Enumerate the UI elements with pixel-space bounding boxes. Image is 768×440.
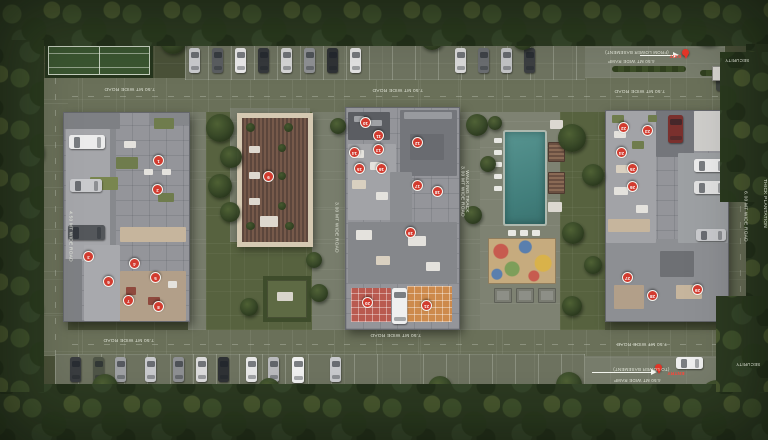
clubhouse-feature	[278, 202, 286, 210]
building-right-feature	[614, 285, 644, 309]
building-right-feature	[616, 165, 630, 173]
building-middle-feature	[408, 236, 426, 246]
pool-zone-feature	[494, 174, 502, 179]
parked-car	[696, 229, 726, 241]
building-middle-feature	[348, 112, 390, 140]
building-middle-feature	[348, 222, 457, 284]
tree-belt-left	[0, 40, 44, 392]
building-left-feature	[66, 129, 110, 261]
clubhouse-feature	[285, 222, 294, 230]
building-middle-features	[346, 108, 459, 329]
building-right-feature	[676, 285, 702, 299]
building-right-features	[606, 111, 728, 321]
building-right-feature	[608, 219, 650, 232]
building-middle-feature	[352, 180, 366, 189]
parked-car	[68, 225, 105, 240]
clubhouse-features	[242, 118, 308, 242]
parked-car	[392, 288, 407, 324]
clubhouse-feature	[246, 123, 255, 132]
clubhouse-feature	[249, 198, 260, 205]
building-left-feature	[90, 177, 118, 190]
building-left-feature	[64, 259, 82, 321]
building-left-feature	[120, 227, 186, 242]
building-middle-feature	[390, 172, 412, 284]
building-left-features	[64, 113, 189, 321]
site-master-plan: 1234567891011121314151617181920212223242…	[0, 0, 768, 440]
building-right-feature	[636, 205, 648, 213]
building-middle-feature	[348, 144, 396, 220]
tree-belt-right-upper	[720, 52, 768, 202]
building-right-feature	[614, 131, 626, 138]
building-left-feature	[84, 245, 120, 321]
building-left-feature	[162, 169, 171, 175]
pool-zone-feature	[494, 150, 502, 155]
building-right-feature	[660, 251, 694, 277]
hedge-garden	[263, 276, 311, 322]
clubhouse-feature	[249, 146, 260, 153]
building-right	[605, 110, 729, 322]
building-middle-feature	[426, 262, 440, 271]
building-right-feature	[614, 187, 628, 195]
building-left-feature	[120, 271, 186, 321]
building-left-feature	[144, 169, 153, 175]
building-left-feature	[64, 113, 120, 129]
building-right-feature	[606, 239, 728, 321]
pool-zone-feature	[494, 138, 502, 143]
building-left-feature	[124, 141, 136, 148]
clubhouse-feature	[246, 222, 255, 230]
pool-and-play-zone	[480, 112, 560, 330]
building-right-feature	[612, 115, 624, 123]
swimming-pool	[505, 132, 545, 224]
building-left-feature	[148, 297, 160, 305]
building-middle-feature	[370, 162, 382, 170]
building-right-feature	[606, 111, 656, 243]
clubhouse-deck	[237, 113, 313, 247]
building-middle-feature	[356, 230, 372, 240]
building-middle-feature	[376, 256, 390, 265]
play-zone-red	[351, 288, 391, 322]
building-left-feature	[154, 118, 174, 129]
building-left-feature	[110, 129, 116, 261]
building-right-feature	[648, 115, 657, 122]
building-left-feature	[126, 287, 136, 295]
building-middle-feature	[354, 116, 364, 122]
building-right-feature	[656, 111, 694, 157]
pool-zone-feature	[532, 230, 540, 236]
parked-car	[668, 115, 683, 143]
building-middle-feature	[410, 134, 444, 160]
pool-zone-features	[480, 112, 560, 330]
seating-pergola	[538, 288, 556, 303]
building-middle-cars	[346, 108, 459, 329]
building-left	[63, 112, 190, 322]
parked-car	[70, 179, 102, 192]
building-left-feature	[116, 157, 138, 169]
parked-car	[69, 135, 105, 149]
tree-belt-top	[0, 0, 768, 46]
clubhouse-feature	[260, 216, 278, 227]
seating-pergola	[494, 288, 512, 303]
building-right-cars	[606, 111, 728, 321]
clubhouse-feature	[278, 172, 286, 180]
building-middle-feature	[400, 110, 457, 176]
building-left-feature	[168, 281, 177, 288]
seating-pergola	[516, 288, 534, 303]
pool-zone-feature	[494, 162, 502, 167]
pool-zone-feature	[494, 186, 502, 191]
building-middle-feature	[370, 120, 382, 126]
kids-playground	[488, 238, 556, 284]
building-right-feature	[632, 141, 644, 149]
play-zone-orange	[407, 286, 452, 322]
building-middle-feature	[352, 150, 364, 158]
tree-belt-bottom	[0, 384, 768, 440]
pool-zone-feature	[548, 202, 562, 212]
clubhouse-feature	[284, 123, 293, 132]
building-left-cars	[64, 113, 189, 321]
pool-zone-feature	[508, 230, 516, 236]
tree-belt-right-lower	[716, 296, 768, 392]
hedge-garden-feature	[277, 292, 293, 301]
building-left-feature	[158, 193, 174, 202]
pool-zone-feature	[520, 230, 528, 236]
building-left-feature	[150, 113, 189, 125]
clubhouse-feature	[249, 172, 260, 179]
building-middle	[345, 107, 460, 330]
clubhouse-feature	[278, 144, 286, 152]
hedge-garden-features	[267, 280, 307, 318]
building-middle-feature	[404, 112, 452, 119]
building-middle-feature	[376, 192, 388, 200]
sports-court	[48, 46, 150, 75]
